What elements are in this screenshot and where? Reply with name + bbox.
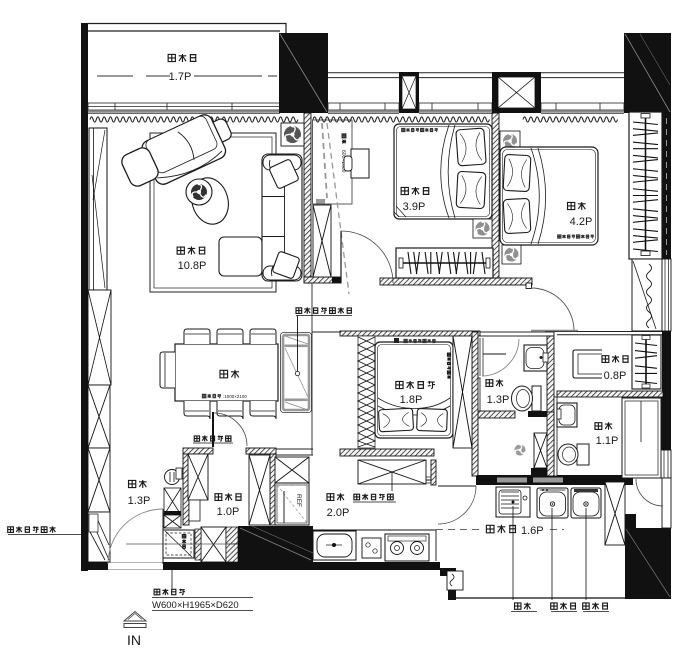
svg-text:W600×H1965×D620: W600×H1965×D620	[152, 600, 239, 611]
svg-text:4.2P: 4.2P	[570, 216, 593, 228]
svg-text:REF: REF	[295, 494, 302, 507]
svg-text::1000×2100: :1000×2100	[223, 394, 247, 399]
svg-text:1.6P: 1.6P	[521, 525, 544, 537]
svg-text:1.3P: 1.3P	[487, 394, 510, 406]
svg-text:3.9P: 3.9P	[403, 201, 426, 213]
svg-text:1.7P: 1.7P	[169, 71, 192, 83]
svg-text:1.0P: 1.0P	[217, 506, 240, 518]
svg-text:IN: IN	[127, 632, 141, 648]
svg-text:1.1P: 1.1P	[596, 435, 619, 447]
svg-text:1.8P: 1.8P	[400, 394, 423, 406]
svg-text:0.8P: 0.8P	[604, 370, 627, 382]
svg-text:1.3P: 1.3P	[128, 495, 151, 507]
svg-text:10.8P: 10.8P	[178, 260, 207, 272]
svg-text:2.0P: 2.0P	[327, 507, 350, 519]
